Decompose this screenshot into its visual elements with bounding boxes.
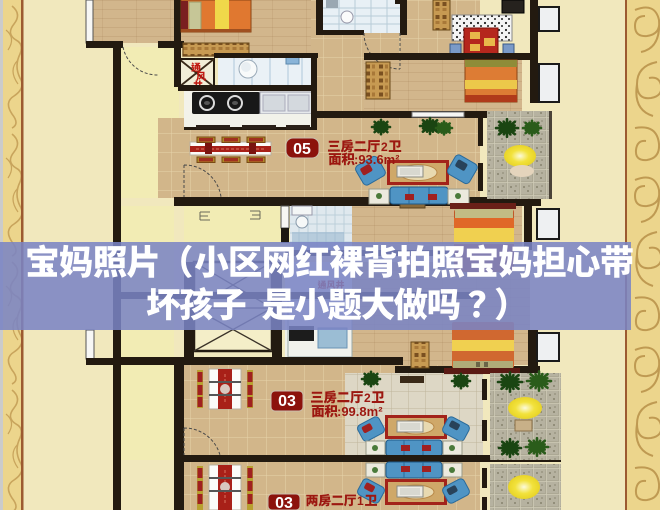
svg-text:03: 03 [275, 495, 293, 510]
svg-text:1: 1 [357, 494, 364, 508]
svg-text:03: 03 [278, 393, 296, 410]
svg-text::93.6m²: :93.6m² [354, 152, 400, 167]
svg-text::99.8m²: :99.8m² [337, 404, 383, 419]
svg-text:2: 2 [364, 391, 371, 405]
svg-text:05: 05 [293, 141, 311, 158]
